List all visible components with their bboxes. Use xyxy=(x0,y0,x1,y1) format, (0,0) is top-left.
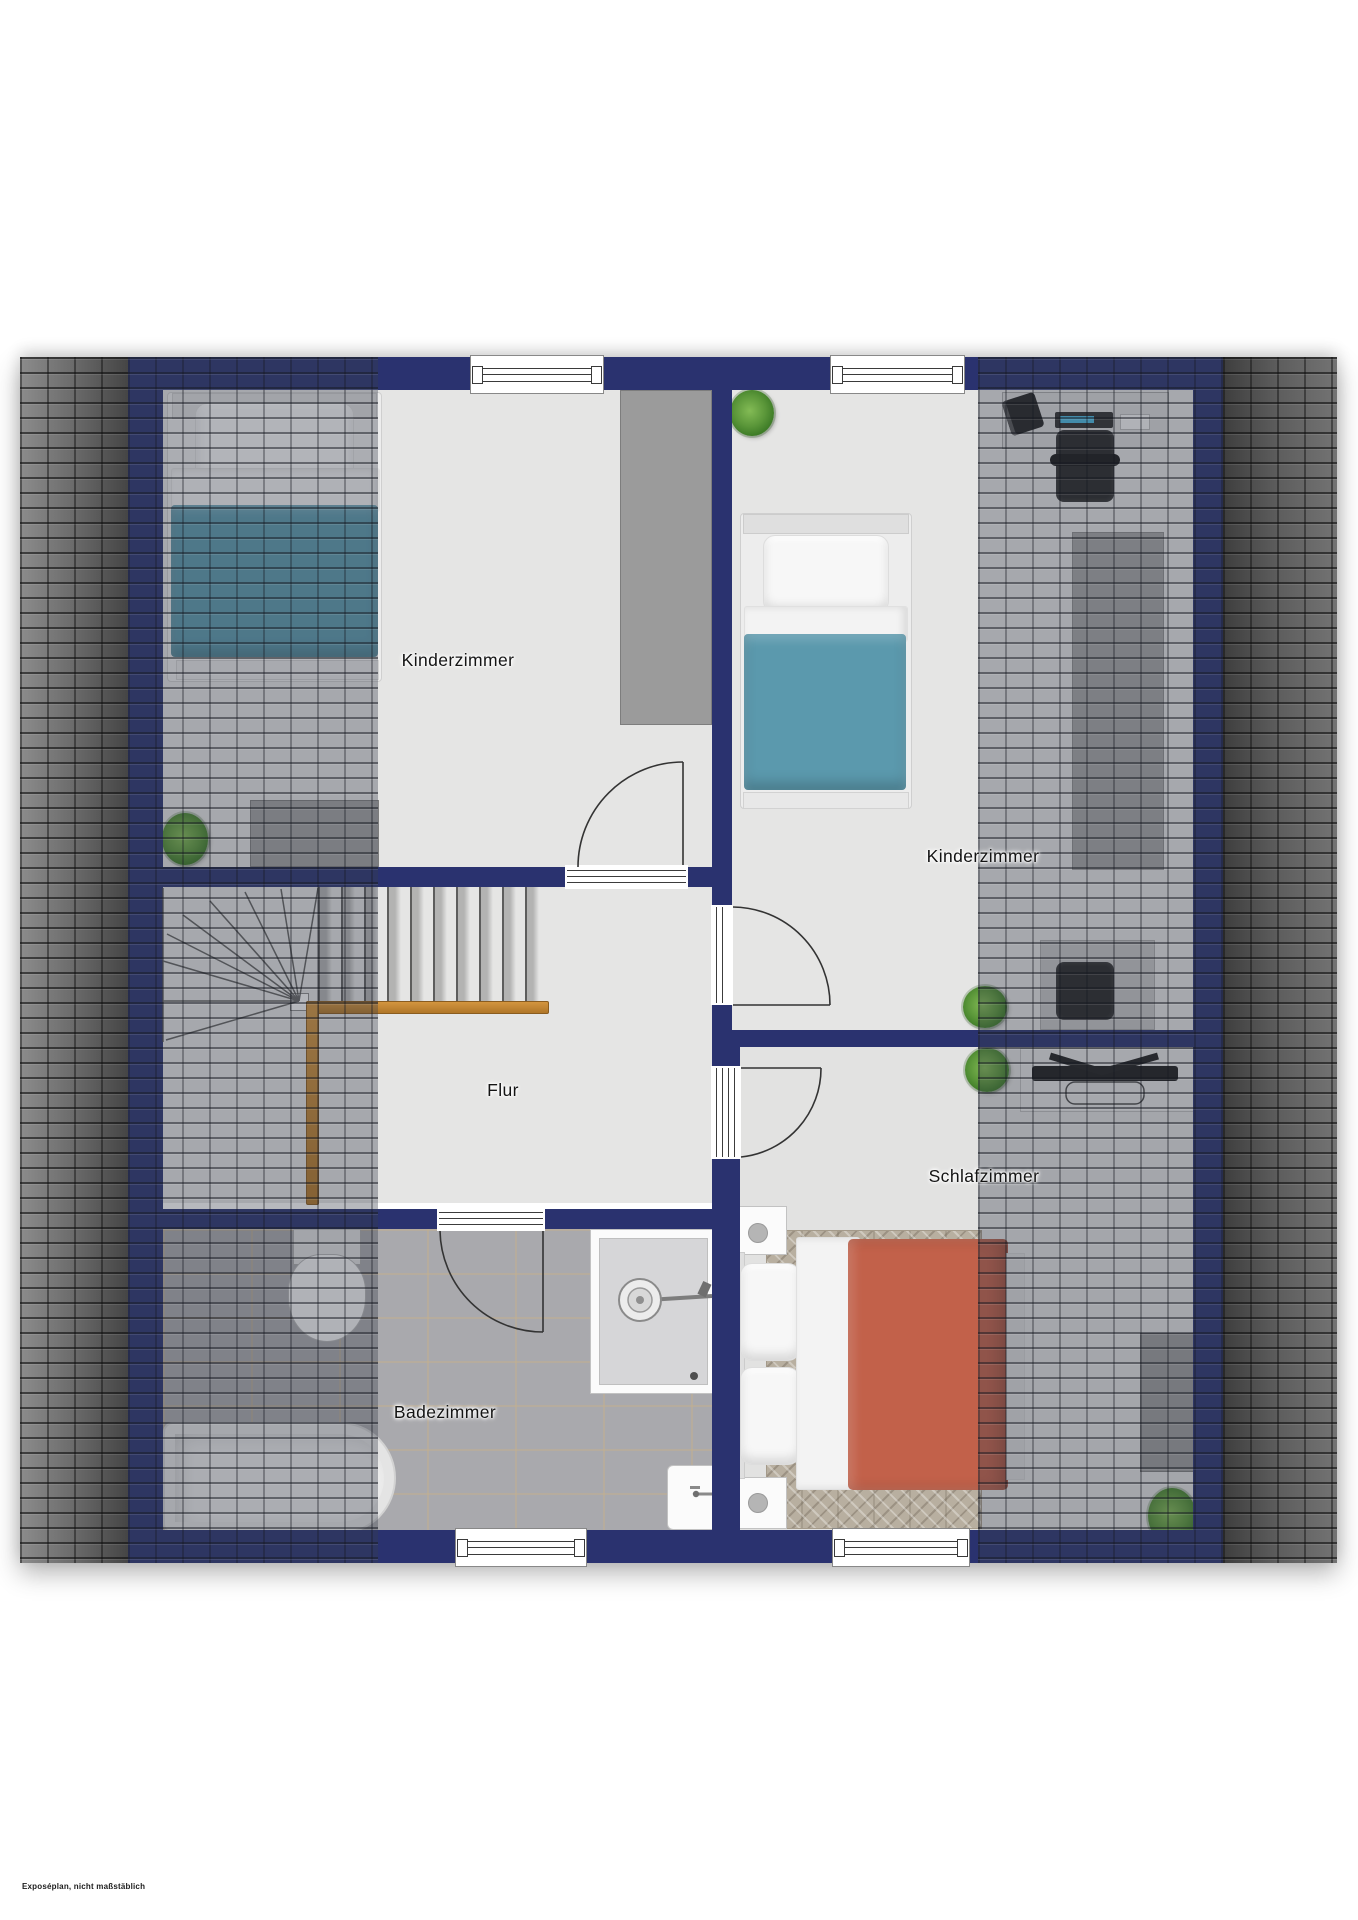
window-cap xyxy=(832,366,843,384)
door-sill xyxy=(567,870,686,884)
shower-tray xyxy=(599,1238,708,1385)
room-label-schlafzimmer: Schlafzimmer xyxy=(929,1166,1040,1187)
door-sill xyxy=(439,1212,543,1226)
room-label-badezimmer: Badezimmer xyxy=(394,1402,496,1423)
window-cap xyxy=(457,1539,468,1557)
window-top-left xyxy=(470,355,604,394)
roof-exterior-left xyxy=(20,357,128,1563)
room-label-kinderzimmer-right: Kinderzimmer xyxy=(927,846,1040,867)
nightstand-knob xyxy=(748,1223,768,1243)
bed-right-footboard xyxy=(743,792,909,809)
door-opening-kinderzimmer-right xyxy=(711,905,733,1005)
window-cap xyxy=(957,1539,968,1557)
nightstand-knob xyxy=(748,1493,768,1513)
room-label-flur: Flur xyxy=(487,1080,519,1101)
wardrobe-left-room xyxy=(620,390,712,725)
roof-slope-overlay-left xyxy=(128,357,378,1563)
bed-double-pillow-1 xyxy=(740,1263,800,1361)
window-bottom-bad xyxy=(455,1528,587,1567)
window-cap xyxy=(472,366,483,384)
wall-badezimmer-schlafzimmer xyxy=(712,1229,740,1530)
window-cap xyxy=(952,366,963,384)
wall-center-upper xyxy=(712,390,732,867)
bed-double-pillow-2 xyxy=(740,1367,800,1465)
door-opening-schlafzimmer xyxy=(711,1066,741,1159)
bed-right-blanket xyxy=(744,634,906,790)
window-cap xyxy=(591,366,602,384)
roof-slope-overlay-right xyxy=(978,357,1223,1563)
door-opening-badezimmer xyxy=(437,1207,545,1231)
window-top-right xyxy=(830,355,965,394)
window-pane xyxy=(463,1541,579,1555)
bed-right-headboard xyxy=(743,514,909,534)
floor-plan-page: Kinderzimmer Kinderzimmer Flur Schlafzim… xyxy=(0,0,1358,1920)
room-label-kinderzimmer-left: Kinderzimmer xyxy=(402,650,515,671)
plant-icon xyxy=(730,390,774,436)
window-pane xyxy=(838,368,957,382)
door-sill xyxy=(716,907,728,1003)
window-cap xyxy=(574,1539,585,1557)
door-opening-kinderzimmer-left xyxy=(565,865,688,889)
window-cap xyxy=(834,1539,845,1557)
footer-disclaimer: Exposéplan, nicht maßstäblich xyxy=(22,1882,145,1891)
window-pane xyxy=(840,1541,962,1555)
shower-icon xyxy=(590,1229,717,1394)
bed-right-pillow xyxy=(763,535,889,613)
window-bottom-schlafzimmer xyxy=(832,1528,970,1567)
door-sill xyxy=(716,1068,736,1157)
window-pane xyxy=(478,368,596,382)
roof-exterior-right xyxy=(1223,357,1337,1563)
